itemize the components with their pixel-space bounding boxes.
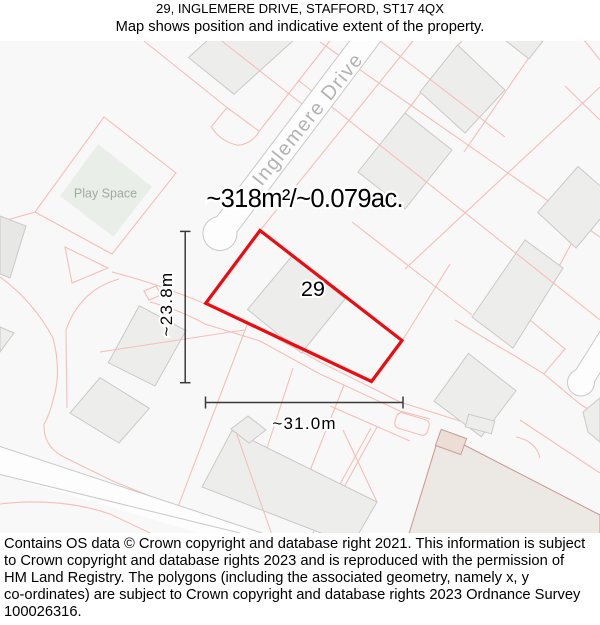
svg-text:29: 29 (301, 276, 325, 301)
svg-text:Play Space: Play Space (74, 187, 137, 201)
svg-text:~23.8m: ~23.8m (157, 272, 176, 337)
svg-text:~31.0m: ~31.0m (272, 414, 336, 433)
svg-text:~318m²/~0.079ac.: ~318m²/~0.079ac. (206, 185, 403, 213)
